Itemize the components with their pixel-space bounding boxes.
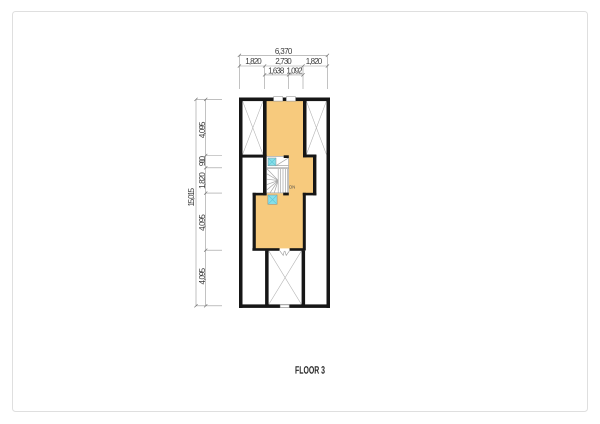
- svg-text:4,095: 4,095: [198, 121, 207, 138]
- svg-text:1,820: 1,820: [245, 57, 262, 66]
- svg-text:4,095: 4,095: [198, 267, 207, 284]
- svg-text:2,730: 2,730: [275, 57, 292, 66]
- svg-text:4,095: 4,095: [198, 214, 207, 231]
- svg-text:DN: DN: [289, 185, 295, 191]
- svg-text:910: 910: [198, 155, 207, 166]
- svg-text:6,370: 6,370: [275, 47, 293, 56]
- svg-text:FLOOR 3: FLOOR 3: [295, 365, 325, 377]
- svg-text:1,820: 1,820: [198, 172, 207, 189]
- svg-text:15,015: 15,015: [187, 187, 196, 206]
- svg-text:1,638: 1,638: [268, 66, 285, 75]
- svg-text:1,092: 1,092: [286, 66, 303, 75]
- svg-text:1,820: 1,820: [306, 57, 323, 66]
